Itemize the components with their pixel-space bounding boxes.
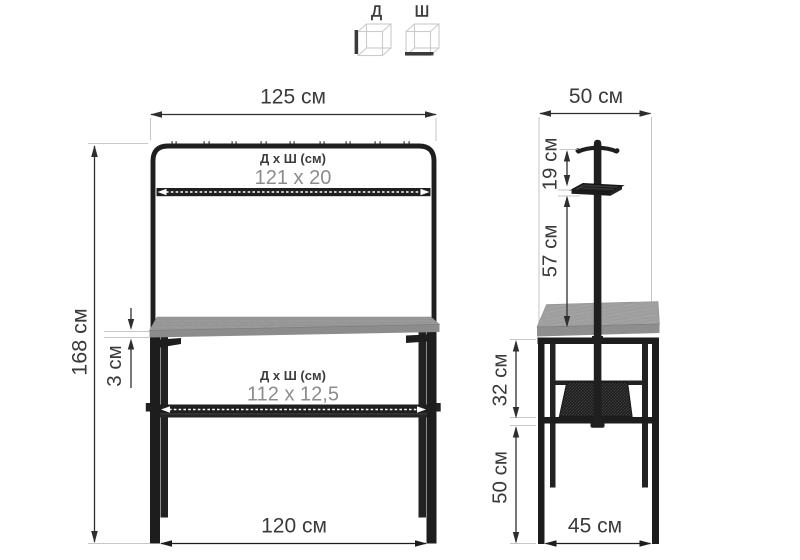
svg-text:19 см: 19 см bbox=[539, 138, 562, 191]
svg-text:168 см: 168 см bbox=[68, 308, 92, 375]
svg-text:121 x 20: 121 x 20 bbox=[255, 167, 332, 189]
svg-text:125 см: 125 см bbox=[260, 86, 326, 109]
svg-text:50 см: 50 см bbox=[569, 85, 623, 108]
svg-text:3 см: 3 см bbox=[103, 345, 126, 386]
svg-text:120 см: 120 см bbox=[261, 515, 327, 538]
svg-text:Д х Ш (см): Д х Ш (см) bbox=[260, 151, 326, 166]
svg-text:Ш: Ш bbox=[415, 4, 430, 21]
svg-text:32 см: 32 см bbox=[489, 354, 512, 407]
svg-text:45 см: 45 см bbox=[568, 515, 622, 538]
svg-text:Д: Д bbox=[371, 4, 382, 21]
svg-text:50 см: 50 см bbox=[489, 451, 512, 504]
svg-text:57 см: 57 см bbox=[539, 225, 562, 278]
svg-text:Д х Ш (см): Д х Ш (см) bbox=[260, 368, 326, 383]
svg-text:112 x 12,5: 112 x 12,5 bbox=[247, 384, 339, 406]
